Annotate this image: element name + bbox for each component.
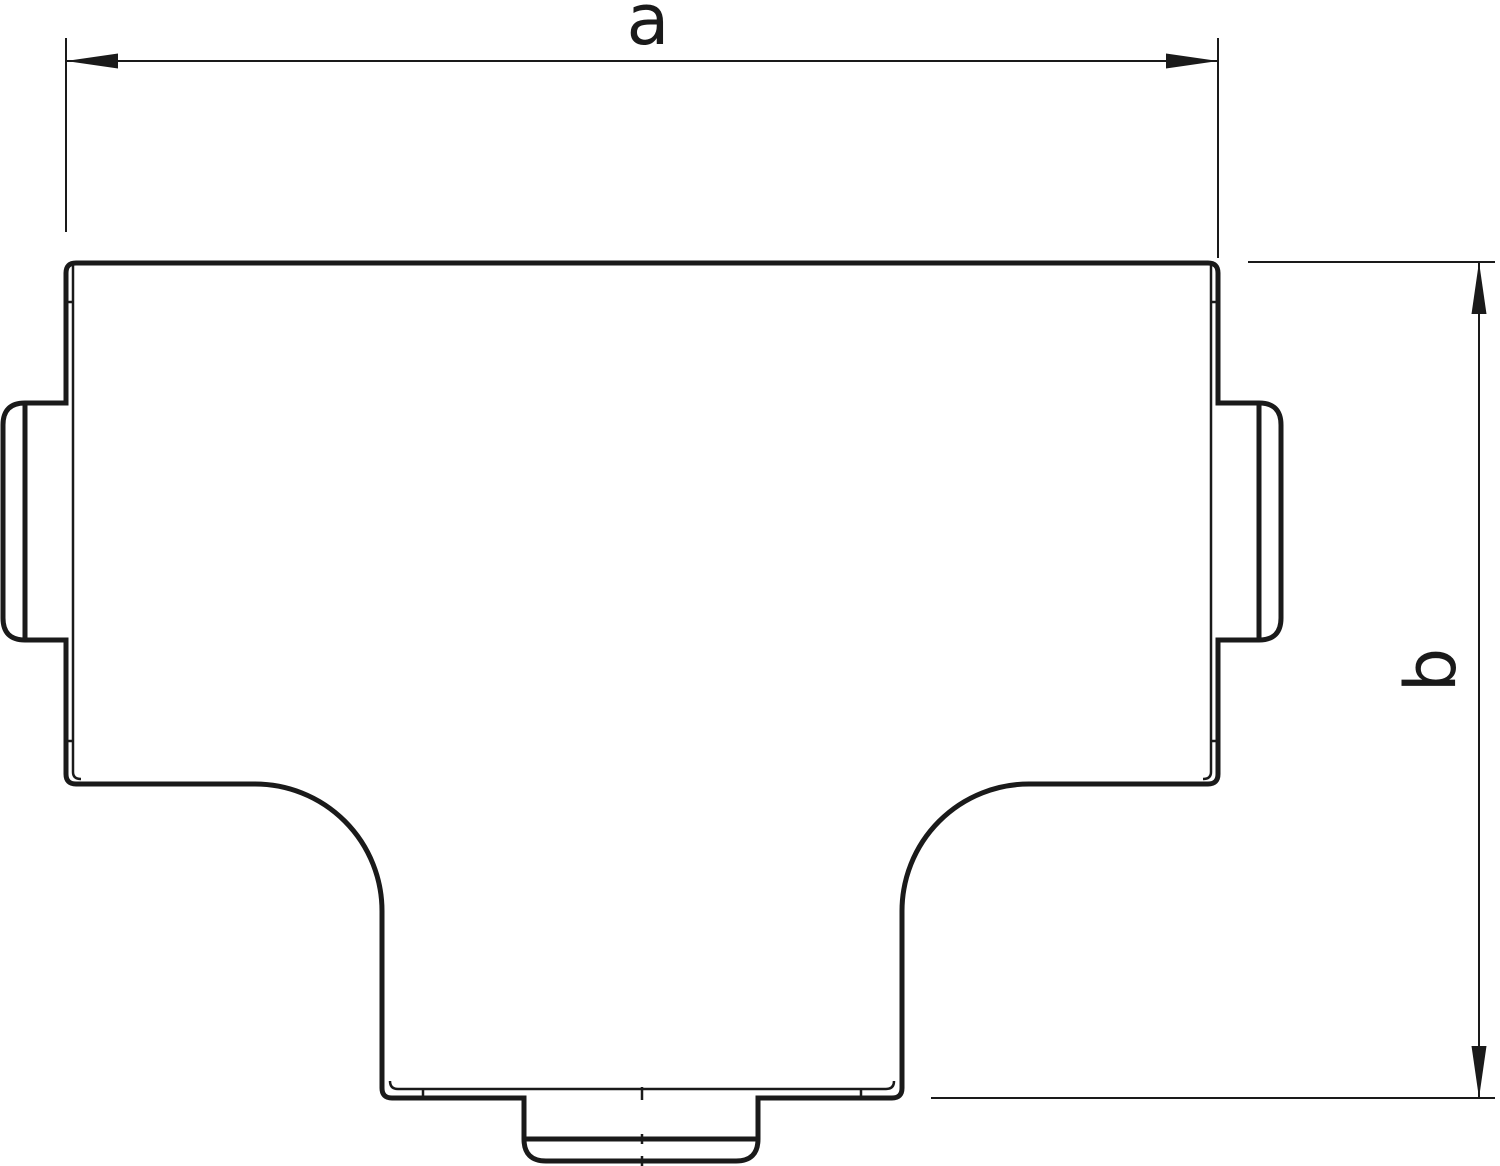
part-outline [3,263,1281,1161]
dimension-a-arrow-right-icon [1166,54,1218,69]
dimension-b-arrow-bottom-icon [1472,1046,1487,1098]
t-piece-drawing [0,0,1500,1166]
dimension-b-label: b [1371,610,1491,730]
dimension-b-arrow-top-icon [1472,262,1487,314]
dimension-a-label: a [588,0,708,60]
right-inner-edge-line [1203,264,1211,779]
dimension-a-arrow-left-icon [66,54,118,69]
dimension-a [66,38,1218,258]
drawing-canvas: a b [0,0,1500,1166]
left-inner-edge-line [73,264,81,779]
part-geometry [3,263,1281,1166]
